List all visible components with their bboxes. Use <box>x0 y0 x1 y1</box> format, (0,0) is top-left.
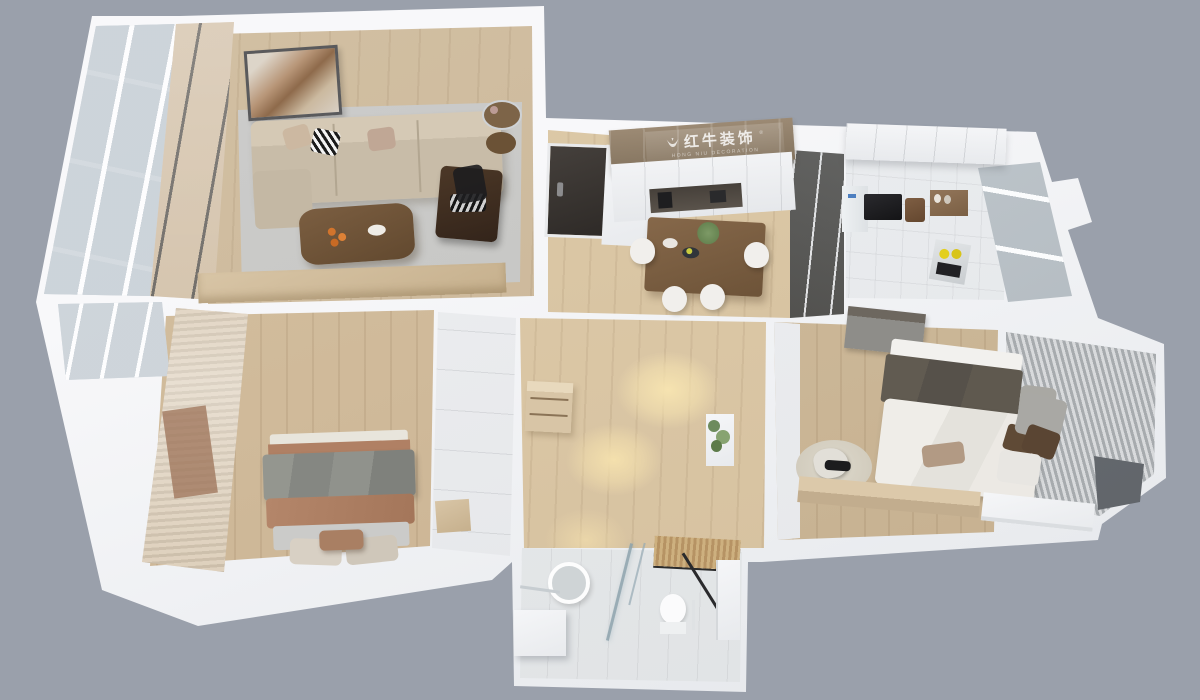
coffee-table <box>298 202 416 266</box>
towel-rail <box>692 600 695 630</box>
side-table-shelf <box>486 132 516 154</box>
microwave <box>864 194 902 220</box>
watermark-registered-mark: ® <box>759 129 763 135</box>
jar <box>944 195 951 204</box>
desk-chair-black <box>452 164 488 205</box>
cooktop <box>929 239 971 285</box>
apartment-floorplan-render: 红牛装饰 ® HONG NIU DECORATION <box>0 0 1200 700</box>
dining-chair <box>744 242 769 268</box>
toilet <box>658 594 688 634</box>
stove-grate <box>936 262 962 278</box>
toilet-tank <box>660 622 686 634</box>
decor-bottle <box>490 106 498 114</box>
coffee-machine <box>658 192 673 209</box>
entry-door <box>544 143 609 239</box>
plant-centerpiece <box>697 222 720 245</box>
dining-chair <box>630 238 655 264</box>
bread-bin <box>905 198 925 222</box>
dining-chair <box>662 286 687 312</box>
vanity-cabinet <box>514 610 566 656</box>
smart-lock <box>557 182 563 196</box>
accent-pillow-terracotta <box>319 529 364 551</box>
jar <box>934 194 941 203</box>
orange-fruit <box>338 233 347 242</box>
side-table-top <box>482 100 522 130</box>
hall-plant-panel <box>706 414 734 466</box>
countertop-appliance <box>710 190 727 203</box>
plate <box>662 238 678 249</box>
office-chair-arm <box>824 460 851 472</box>
hall-cabinet <box>525 381 574 433</box>
kitchen-upper-cabinets <box>845 123 1006 165</box>
dining-chair <box>700 284 725 310</box>
wardrobe-wood-toe <box>435 499 471 533</box>
master-bed <box>260 427 423 572</box>
side-table <box>480 100 520 160</box>
round-mirror <box>548 562 590 604</box>
plate <box>367 224 386 236</box>
shelf-line <box>530 413 568 417</box>
wall-art <box>244 45 343 121</box>
lemon <box>939 248 951 260</box>
sofa-seam <box>416 120 421 192</box>
plant-leaves <box>711 440 722 452</box>
lemon <box>951 248 963 260</box>
gray-throw-blanket <box>262 449 416 500</box>
bathroom-door <box>716 560 740 640</box>
hongniu-bull-logo-icon <box>666 137 681 150</box>
shelf-line <box>530 397 568 401</box>
toilet-bowl <box>660 594 686 624</box>
fridge-label <box>848 194 856 198</box>
spice-shelf <box>930 190 968 216</box>
pillow-blush <box>367 126 397 152</box>
orange-fruit <box>330 238 339 247</box>
orange-fruit <box>328 227 337 236</box>
bay-cushion-white <box>996 449 1042 487</box>
